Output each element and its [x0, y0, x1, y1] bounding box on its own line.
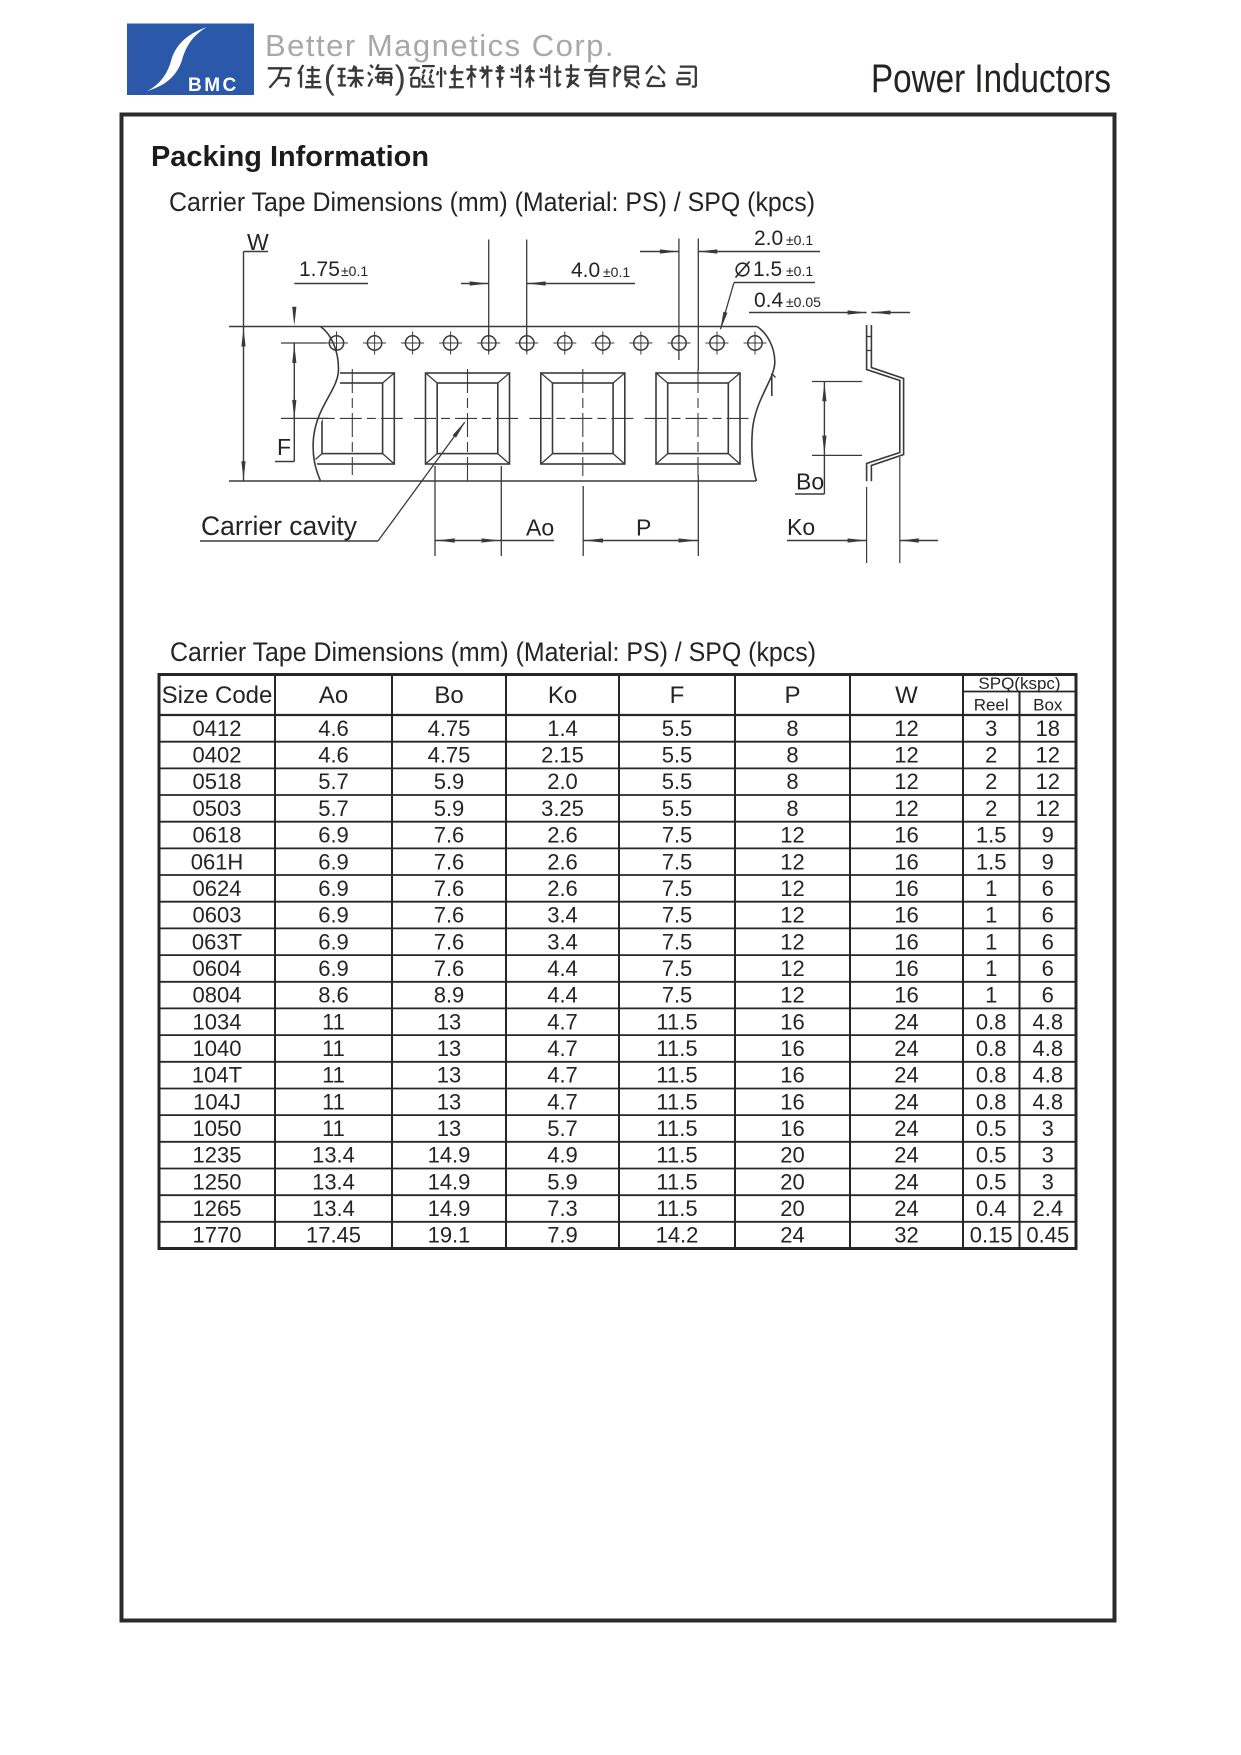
svg-text:6.9: 6.9 — [318, 929, 349, 954]
svg-text:Bo: Bo — [434, 682, 463, 709]
svg-text:16: 16 — [894, 956, 918, 981]
svg-text:24: 24 — [894, 1196, 918, 1221]
svg-text:5.5: 5.5 — [662, 716, 693, 741]
svg-text:3: 3 — [1042, 1143, 1054, 1168]
svg-text:16: 16 — [780, 1063, 804, 1088]
svg-text:1: 1 — [985, 983, 997, 1008]
svg-text:Carrier Tape Dimensions (mm) (: Carrier Tape Dimensions (mm) (Material: … — [170, 637, 816, 667]
svg-text:20: 20 — [780, 1196, 804, 1221]
svg-text:1: 1 — [985, 876, 997, 901]
svg-text:0.8: 0.8 — [976, 1009, 1007, 1034]
svg-text:): ) — [395, 59, 406, 96]
svg-text:5.5: 5.5 — [662, 743, 693, 768]
svg-text:16: 16 — [780, 1009, 804, 1034]
svg-text:P: P — [784, 682, 800, 709]
svg-text:12: 12 — [894, 769, 918, 794]
svg-text:2.4: 2.4 — [1033, 1196, 1064, 1221]
svg-text:6.9: 6.9 — [318, 823, 349, 848]
svg-text:1250: 1250 — [193, 1169, 242, 1194]
svg-text:4.4: 4.4 — [547, 983, 578, 1008]
svg-text:Power Inductors: Power Inductors — [871, 57, 1111, 101]
svg-text:BMC: BMC — [188, 75, 239, 96]
svg-text:4.8: 4.8 — [1033, 1063, 1064, 1088]
svg-text:2.0: 2.0 — [754, 227, 783, 250]
svg-text:±0.1: ±0.1 — [786, 263, 813, 279]
svg-text:12: 12 — [894, 796, 918, 821]
svg-text:P: P — [636, 515, 651, 541]
svg-text:6: 6 — [1042, 876, 1054, 901]
svg-text:6: 6 — [1042, 929, 1054, 954]
svg-text:7.5: 7.5 — [662, 823, 693, 848]
svg-text:104J: 104J — [193, 1089, 241, 1114]
svg-text:W: W — [247, 229, 269, 255]
svg-text:Bo: Bo — [796, 469, 824, 495]
svg-text:7.6: 7.6 — [434, 849, 465, 874]
svg-text:7.5: 7.5 — [662, 876, 693, 901]
svg-text:SPQ(kspc): SPQ(kspc) — [978, 674, 1060, 693]
svg-text:2.6: 2.6 — [547, 849, 578, 874]
svg-text:±0.1: ±0.1 — [786, 232, 813, 248]
svg-text:2: 2 — [985, 769, 997, 794]
svg-text:4.4: 4.4 — [547, 956, 578, 981]
svg-text:7.6: 7.6 — [434, 823, 465, 848]
svg-text:32: 32 — [894, 1223, 918, 1248]
svg-text:0.5: 0.5 — [976, 1169, 1007, 1194]
svg-text:16: 16 — [894, 903, 918, 928]
svg-text:9: 9 — [1042, 849, 1054, 874]
svg-text:8: 8 — [786, 769, 798, 794]
svg-text:7.6: 7.6 — [434, 956, 465, 981]
svg-text:1.5: 1.5 — [976, 823, 1007, 848]
svg-text:12: 12 — [1036, 743, 1060, 768]
svg-text:1040: 1040 — [193, 1036, 242, 1061]
svg-text:8: 8 — [786, 716, 798, 741]
svg-text:1.5: 1.5 — [753, 258, 782, 281]
svg-text:24: 24 — [894, 1143, 918, 1168]
svg-text:5.7: 5.7 — [318, 769, 349, 794]
svg-text:5.9: 5.9 — [434, 796, 465, 821]
svg-text:3: 3 — [1042, 1169, 1054, 1194]
svg-text:12: 12 — [780, 929, 804, 954]
svg-text:Size Code: Size Code — [162, 682, 273, 709]
svg-text:4.6: 4.6 — [318, 716, 349, 741]
svg-text:Carrier Tape Dimensions (mm) (: Carrier Tape Dimensions (mm) (Material: … — [169, 187, 815, 217]
svg-text:24: 24 — [894, 1089, 918, 1114]
svg-text:2.6: 2.6 — [547, 823, 578, 848]
svg-text:8.9: 8.9 — [434, 983, 465, 1008]
svg-text:20: 20 — [780, 1169, 804, 1194]
svg-text:12: 12 — [780, 849, 804, 874]
svg-text:4.7: 4.7 — [547, 1089, 578, 1114]
svg-text:2.0: 2.0 — [547, 769, 578, 794]
svg-text:1.75: 1.75 — [299, 258, 340, 281]
svg-text:1.5: 1.5 — [976, 849, 1007, 874]
svg-text:9: 9 — [1042, 823, 1054, 848]
svg-text:24: 24 — [780, 1223, 804, 1248]
svg-text:7.6: 7.6 — [434, 903, 465, 928]
svg-text:4.75: 4.75 — [428, 716, 471, 741]
svg-text:11.5: 11.5 — [656, 1196, 697, 1221]
svg-text:Ko: Ko — [787, 514, 815, 540]
svg-text:±0.05: ±0.05 — [786, 294, 821, 310]
svg-text:0.45: 0.45 — [1026, 1223, 1069, 1248]
svg-text:12: 12 — [780, 876, 804, 901]
svg-text:Reel: Reel — [974, 696, 1009, 715]
svg-text:Ko: Ko — [548, 682, 577, 709]
svg-text:6: 6 — [1042, 903, 1054, 928]
svg-text:±0.1: ±0.1 — [341, 263, 368, 279]
svg-text:4.75: 4.75 — [428, 743, 471, 768]
svg-text:1: 1 — [985, 903, 997, 928]
svg-text:2: 2 — [985, 796, 997, 821]
svg-text:12: 12 — [780, 956, 804, 981]
svg-text:5.5: 5.5 — [662, 796, 693, 821]
svg-text:11.5: 11.5 — [656, 1169, 697, 1194]
svg-text:Better Magnetics Corp.: Better Magnetics Corp. — [265, 28, 615, 63]
svg-text:11: 11 — [322, 1089, 345, 1114]
svg-text:11.5: 11.5 — [656, 1116, 697, 1141]
svg-text:16: 16 — [780, 1116, 804, 1141]
svg-text:W: W — [895, 682, 918, 709]
svg-text:11.5: 11.5 — [656, 1036, 697, 1061]
svg-text:0.5: 0.5 — [976, 1143, 1007, 1168]
svg-text:4.8: 4.8 — [1033, 1036, 1064, 1061]
svg-text:12: 12 — [894, 743, 918, 768]
svg-text:2: 2 — [985, 743, 997, 768]
svg-text:Packing Information: Packing Information — [151, 141, 429, 173]
svg-text:11.5: 11.5 — [656, 1009, 697, 1034]
svg-text:24: 24 — [894, 1036, 918, 1061]
svg-text:14.9: 14.9 — [428, 1143, 471, 1168]
svg-text:24: 24 — [894, 1009, 918, 1034]
svg-text:13.4: 13.4 — [312, 1196, 355, 1221]
svg-text:5.7: 5.7 — [318, 796, 349, 821]
svg-text:Carrier cavity: Carrier cavity — [201, 511, 357, 541]
svg-text:12: 12 — [780, 903, 804, 928]
svg-text:061H: 061H — [191, 849, 244, 874]
svg-text:24: 24 — [894, 1169, 918, 1194]
svg-text:16: 16 — [894, 849, 918, 874]
svg-text:4.6: 4.6 — [318, 743, 349, 768]
svg-text:14.9: 14.9 — [428, 1169, 471, 1194]
svg-text:24: 24 — [894, 1116, 918, 1141]
svg-text:18: 18 — [1036, 716, 1060, 741]
svg-text:7.5: 7.5 — [662, 956, 693, 981]
svg-text:3.4: 3.4 — [547, 929, 578, 954]
svg-text:16: 16 — [780, 1036, 804, 1061]
svg-text:16: 16 — [780, 1089, 804, 1114]
svg-text:2.15: 2.15 — [541, 743, 584, 768]
svg-text:0402: 0402 — [193, 743, 242, 768]
svg-text:16: 16 — [894, 876, 918, 901]
svg-text:1770: 1770 — [193, 1223, 242, 1248]
svg-text:6.9: 6.9 — [318, 956, 349, 981]
svg-text:5.9: 5.9 — [547, 1169, 578, 1194]
svg-text:0412: 0412 — [193, 716, 242, 741]
svg-text:Ao: Ao — [319, 682, 348, 709]
svg-text:24: 24 — [894, 1063, 918, 1088]
svg-text:1034: 1034 — [193, 1009, 242, 1034]
svg-text:13: 13 — [437, 1009, 461, 1034]
svg-text:12: 12 — [1036, 796, 1060, 821]
svg-text:3.25: 3.25 — [541, 796, 584, 821]
svg-text:13: 13 — [437, 1089, 461, 1114]
svg-text:6: 6 — [1042, 983, 1054, 1008]
svg-text:0618: 0618 — [193, 823, 242, 848]
svg-text:12: 12 — [780, 983, 804, 1008]
svg-text:1050: 1050 — [193, 1116, 242, 1141]
svg-text:Ao: Ao — [526, 515, 554, 541]
svg-text:7.6: 7.6 — [434, 929, 465, 954]
svg-text:104T: 104T — [192, 1063, 242, 1088]
svg-text:6.9: 6.9 — [318, 876, 349, 901]
svg-text:17.45: 17.45 — [306, 1223, 361, 1248]
svg-text:4.7: 4.7 — [547, 1009, 578, 1034]
svg-text:0603: 0603 — [193, 903, 242, 928]
svg-text:16: 16 — [894, 983, 918, 1008]
svg-text:13: 13 — [437, 1116, 461, 1141]
svg-text:7.5: 7.5 — [662, 929, 693, 954]
svg-text:7.5: 7.5 — [662, 903, 693, 928]
svg-text:0.8: 0.8 — [976, 1063, 1007, 1088]
svg-text:13.4: 13.4 — [312, 1169, 355, 1194]
svg-text:20: 20 — [780, 1143, 804, 1168]
svg-text:13: 13 — [437, 1063, 461, 1088]
svg-text:0804: 0804 — [193, 983, 242, 1008]
svg-text:6.9: 6.9 — [318, 903, 349, 928]
svg-text:0604: 0604 — [193, 956, 242, 981]
svg-text:7.6: 7.6 — [434, 876, 465, 901]
svg-text:0503: 0503 — [193, 796, 242, 821]
svg-text:6: 6 — [1042, 956, 1054, 981]
svg-text:063T: 063T — [192, 929, 242, 954]
svg-text:4.9: 4.9 — [547, 1143, 578, 1168]
svg-text:7.5: 7.5 — [662, 983, 693, 1008]
svg-text:4.8: 4.8 — [1033, 1089, 1064, 1114]
svg-text:0.8: 0.8 — [976, 1089, 1007, 1114]
svg-text:16: 16 — [894, 823, 918, 848]
svg-text:13: 13 — [437, 1036, 461, 1061]
svg-text:3: 3 — [985, 716, 997, 741]
svg-text:7.5: 7.5 — [662, 849, 693, 874]
svg-text:11.5: 11.5 — [656, 1089, 697, 1114]
svg-text:F: F — [670, 682, 685, 709]
svg-text:5.5: 5.5 — [662, 769, 693, 794]
svg-text:7.9: 7.9 — [547, 1223, 578, 1248]
svg-text:1.4: 1.4 — [547, 716, 578, 741]
svg-text:3.4: 3.4 — [547, 903, 578, 928]
svg-text:1: 1 — [985, 956, 997, 981]
svg-text:±0.1: ±0.1 — [603, 264, 630, 280]
svg-text:12: 12 — [894, 716, 918, 741]
svg-text:6.9: 6.9 — [318, 849, 349, 874]
svg-text:(: ( — [324, 59, 335, 96]
svg-text:7.3: 7.3 — [547, 1196, 578, 1221]
svg-text:4.8: 4.8 — [1033, 1009, 1064, 1034]
svg-text:3: 3 — [1042, 1116, 1054, 1141]
svg-text:0.4: 0.4 — [976, 1196, 1007, 1221]
svg-text:1235: 1235 — [193, 1143, 242, 1168]
svg-text:0518: 0518 — [193, 769, 242, 794]
svg-text:0.4: 0.4 — [754, 289, 784, 312]
svg-text:14.2: 14.2 — [656, 1223, 699, 1248]
svg-text:0.8: 0.8 — [976, 1036, 1007, 1061]
svg-text:5.7: 5.7 — [547, 1116, 578, 1141]
svg-text:4.7: 4.7 — [547, 1036, 578, 1061]
svg-text:12: 12 — [1036, 769, 1060, 794]
svg-text:11: 11 — [322, 1116, 345, 1141]
svg-text:8: 8 — [786, 796, 798, 821]
svg-text:11: 11 — [322, 1009, 345, 1034]
svg-text:0.5: 0.5 — [976, 1116, 1007, 1141]
svg-text:1: 1 — [985, 929, 997, 954]
svg-text:16: 16 — [894, 929, 918, 954]
svg-text:F: F — [277, 434, 291, 460]
svg-text:11.5: 11.5 — [656, 1143, 697, 1168]
svg-text:8.6: 8.6 — [318, 983, 349, 1008]
svg-text:0624: 0624 — [193, 876, 242, 901]
svg-text:12: 12 — [780, 823, 804, 848]
svg-text:Box: Box — [1033, 696, 1063, 715]
svg-text:14.9: 14.9 — [428, 1196, 471, 1221]
svg-text:4.0: 4.0 — [571, 259, 600, 282]
svg-text:11: 11 — [322, 1036, 345, 1061]
svg-text:4.7: 4.7 — [547, 1063, 578, 1088]
svg-text:19.1: 19.1 — [428, 1223, 471, 1248]
svg-text:11: 11 — [322, 1063, 345, 1088]
svg-text:5.9: 5.9 — [434, 769, 465, 794]
svg-text:0.15: 0.15 — [970, 1223, 1013, 1248]
svg-text:1265: 1265 — [193, 1196, 242, 1221]
svg-text:11.5: 11.5 — [656, 1063, 697, 1088]
svg-text:8: 8 — [786, 743, 798, 768]
svg-text:13.4: 13.4 — [312, 1143, 355, 1168]
svg-text:2.6: 2.6 — [547, 876, 578, 901]
